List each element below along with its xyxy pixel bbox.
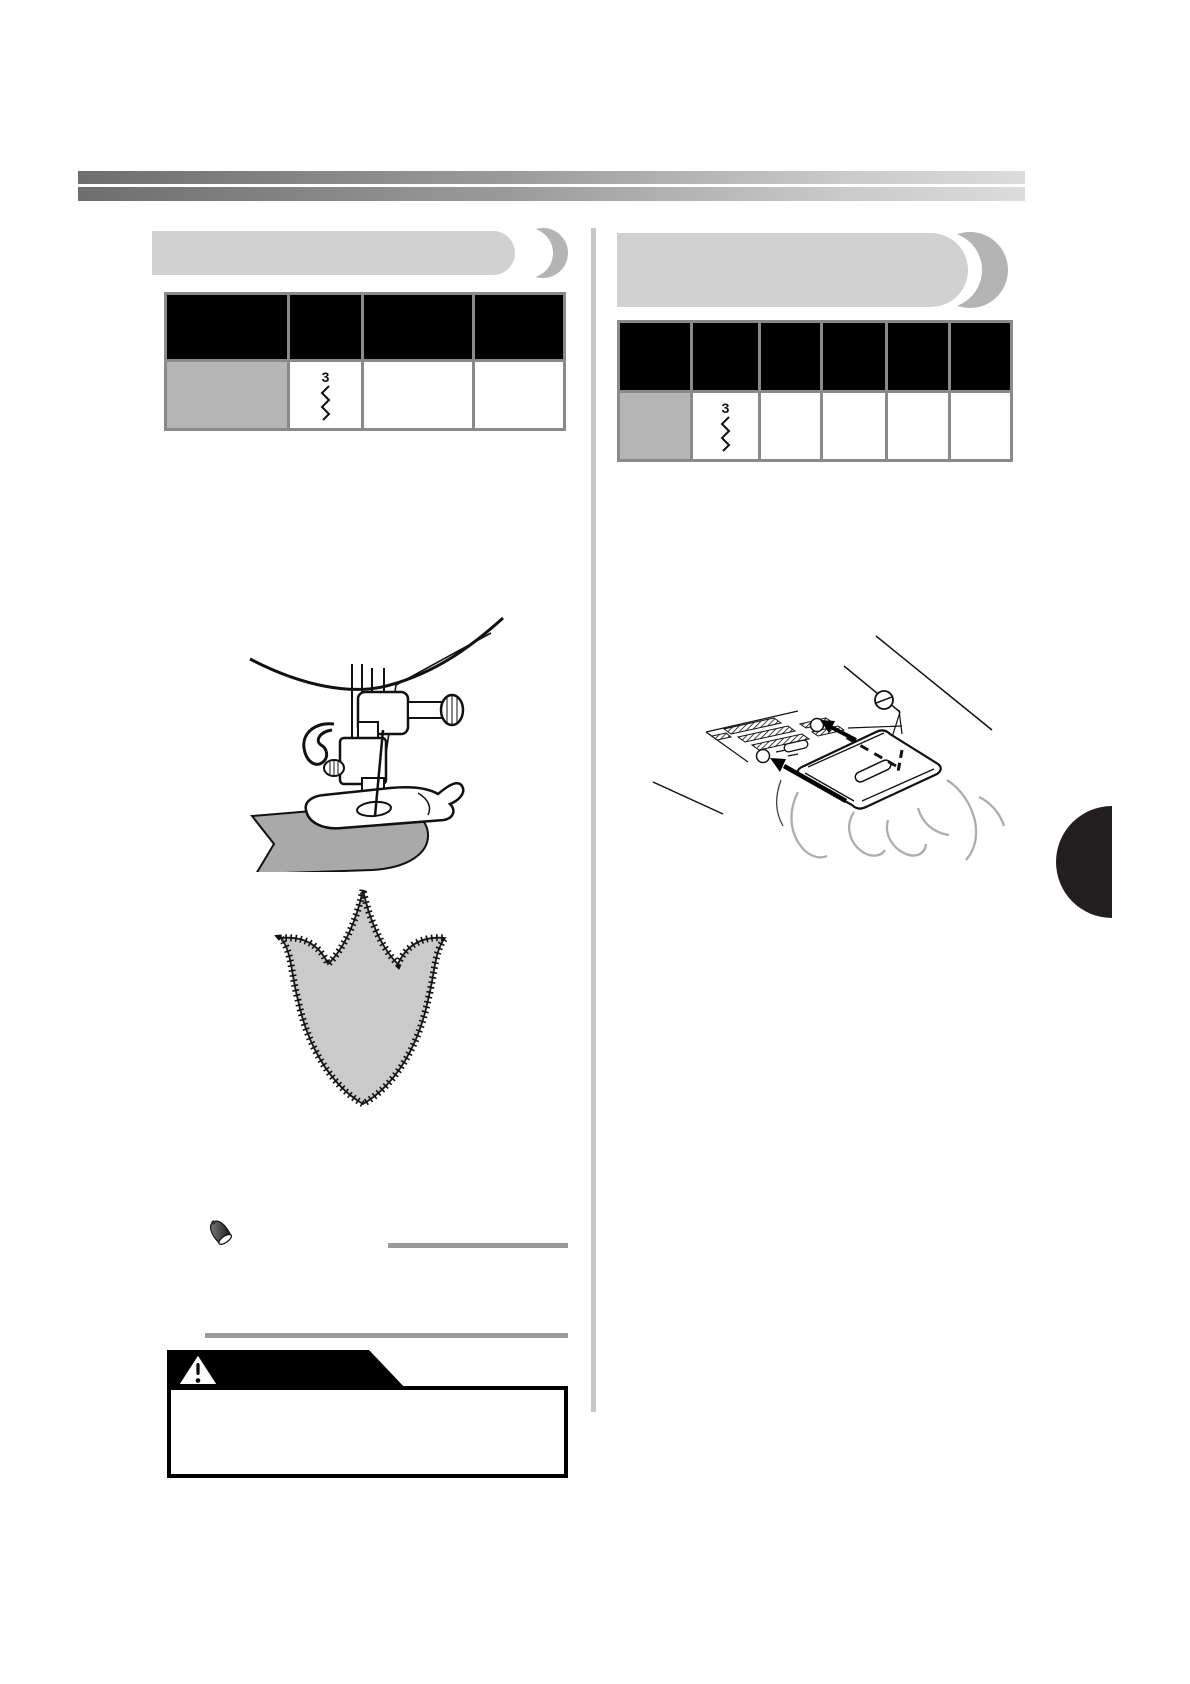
zigzag-stitch-icon [720, 416, 732, 452]
column-divider [591, 228, 596, 1412]
blank-cell [475, 362, 563, 428]
thimble-note-icon [203, 1215, 237, 1249]
right-stitch-table: 3 [617, 320, 1013, 462]
blank-cell [823, 393, 885, 459]
table-header-cell [951, 323, 1010, 390]
zigzag-stitch-icon [320, 385, 332, 421]
stitch-width-cell: 3 [290, 362, 361, 428]
gray-swatch-cell [167, 362, 287, 428]
table-header-cell [620, 323, 690, 390]
table-header-cell [888, 323, 948, 390]
blank-cell [951, 393, 1010, 459]
note-underline-rule [388, 1243, 568, 1248]
gray-swatch-cell [620, 393, 690, 459]
banner-pill [152, 231, 515, 275]
caution-box [167, 1386, 568, 1478]
tulip-applique-illustration [261, 876, 465, 1116]
table-header-cell [167, 295, 287, 359]
needle-plate-illustration [648, 630, 1010, 868]
slide-arrow [770, 758, 786, 772]
blank-cell [761, 393, 820, 459]
right-section-banner [617, 230, 1017, 310]
manual-page: 3 3 [0, 0, 1190, 1684]
stitch-width-cell: 3 [693, 393, 758, 459]
blank-cell [364, 362, 472, 428]
top-gradient-rule-1 [78, 171, 1025, 184]
left-stitch-table: 3 [164, 292, 566, 431]
chapter-side-tab [1056, 806, 1112, 918]
table-header-cell [290, 295, 361, 359]
left-section-banner [152, 228, 572, 278]
table-header-cell [475, 295, 563, 359]
warning-triangle-icon [176, 1352, 220, 1388]
stitch-width-value: 3 [322, 370, 330, 384]
table-header-cell [364, 295, 472, 359]
presser-foot-illustration [222, 572, 534, 872]
screw-hole [757, 750, 770, 763]
blank-cell [888, 393, 948, 459]
top-gradient-rule-2 [78, 187, 1025, 201]
stitch-width-value: 3 [722, 401, 730, 415]
section-divider-rule [205, 1333, 568, 1338]
table-header-cell [823, 323, 885, 390]
banner-pill [617, 233, 968, 307]
table-header-cell [761, 323, 820, 390]
table-header-cell [693, 323, 758, 390]
